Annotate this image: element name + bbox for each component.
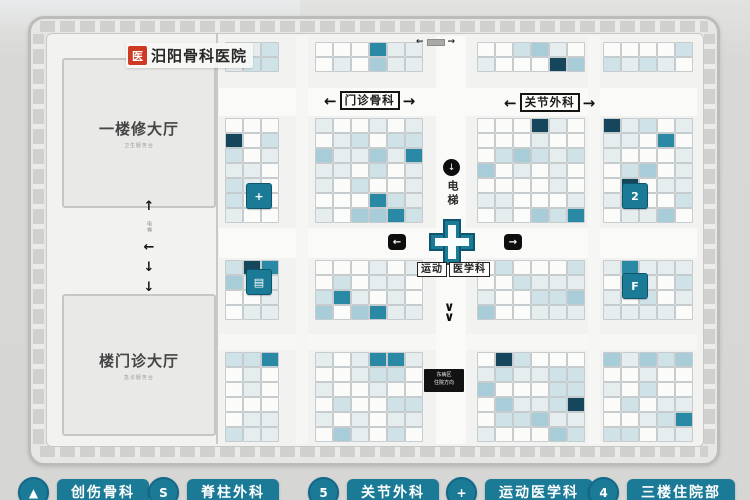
booth-cell	[567, 118, 585, 133]
booth-cell	[513, 305, 531, 320]
booth-cell	[639, 42, 657, 57]
booth-cell	[369, 275, 387, 290]
booth-cell	[225, 397, 243, 412]
booth-cell	[567, 57, 585, 72]
left-arrow-icon: ←	[504, 94, 517, 112]
booth-cell	[603, 397, 621, 412]
booth-cell	[675, 148, 693, 163]
booth-cell	[495, 133, 513, 148]
booth-cell	[675, 382, 693, 397]
department-badge-icon: +	[246, 183, 272, 209]
booth-cell	[333, 427, 351, 442]
booth-cell	[351, 57, 369, 72]
booth-cell	[639, 133, 657, 148]
booth-cell	[351, 352, 369, 367]
booth-cell	[657, 163, 675, 178]
booth-cell	[369, 42, 387, 57]
booth-cell	[567, 427, 585, 442]
logo-text: 汨阳骨科医院	[151, 45, 247, 66]
booth-cell	[261, 367, 279, 382]
booth-cell	[549, 208, 567, 223]
hall-lower-subtitle: 急诊服务台	[124, 374, 154, 381]
booth-cell	[405, 352, 423, 367]
booth-cell	[531, 148, 549, 163]
booth-cell	[225, 367, 243, 382]
booth-cell	[549, 427, 567, 442]
booth-cell	[531, 397, 549, 412]
booth-cell	[369, 382, 387, 397]
booth-cell	[351, 193, 369, 208]
legend-item: ▲创伤骨科	[18, 477, 149, 500]
booth-cell	[621, 42, 639, 57]
booth-cell	[567, 397, 585, 412]
booth-cell	[657, 178, 675, 193]
booth-cell	[315, 352, 333, 367]
legend-item: 5关节外科	[308, 477, 439, 500]
elevator-icon: ↓	[443, 159, 460, 176]
booth-cell	[549, 57, 567, 72]
ward-sign-line2: 住院方向	[424, 379, 464, 387]
booth-cell	[549, 133, 567, 148]
booth-cell	[333, 148, 351, 163]
booth-cell	[351, 382, 369, 397]
booth-cell	[261, 148, 279, 163]
booth-cell	[261, 352, 279, 367]
booth-cell	[513, 275, 531, 290]
booth-cell	[603, 352, 621, 367]
booth-cell	[369, 163, 387, 178]
booth-cell	[657, 42, 675, 57]
booth-cell	[225, 275, 243, 290]
booth-cell	[675, 193, 693, 208]
direction-badge-left-arrow-icon: ←	[388, 234, 406, 250]
booth-cell	[477, 290, 495, 305]
booth-cell	[549, 118, 567, 133]
booth-cell	[657, 193, 675, 208]
booth-cell	[531, 42, 549, 57]
booth-cell	[603, 133, 621, 148]
booth-cell	[603, 275, 621, 290]
booth-cell	[333, 57, 351, 72]
booth-cell	[603, 178, 621, 193]
ward-sign: 东病区 住院方向	[424, 369, 464, 392]
booth-cell	[621, 412, 639, 427]
booth-cell	[639, 57, 657, 72]
booth-cell	[387, 290, 405, 305]
booth-cell	[513, 193, 531, 208]
booth-cell	[315, 148, 333, 163]
booth-cell	[675, 305, 693, 320]
right-arrow-icon: →	[403, 92, 416, 110]
booth-cell	[387, 148, 405, 163]
booth-cell	[657, 412, 675, 427]
booth-cell	[225, 290, 243, 305]
booth-cell	[225, 118, 243, 133]
nav-small-label: 电梯	[146, 221, 152, 233]
hall-upper-title: 一楼修大厅	[99, 118, 179, 139]
booth-cell	[531, 133, 549, 148]
booth-cell	[495, 260, 513, 275]
booth-cell	[369, 290, 387, 305]
booth-cell	[603, 148, 621, 163]
booth-cell	[261, 305, 279, 320]
booth-cell	[621, 352, 639, 367]
sign-label: 门诊骨科	[340, 91, 400, 110]
booth-cell	[225, 208, 243, 223]
booth-cell	[657, 352, 675, 367]
booth-cell	[369, 178, 387, 193]
booth-cell	[549, 163, 567, 178]
booth-cell	[513, 367, 531, 382]
booth-cell	[513, 163, 531, 178]
booth-cell	[405, 118, 423, 133]
booth-cell	[351, 367, 369, 382]
booth-cell	[405, 178, 423, 193]
booth-cell	[495, 163, 513, 178]
booth-cell	[567, 178, 585, 193]
booth-cell	[603, 42, 621, 57]
booth-cell	[405, 290, 423, 305]
booth-cell	[621, 397, 639, 412]
booth-cell	[567, 163, 585, 178]
booth-cell	[675, 412, 693, 427]
booth-cell	[387, 118, 405, 133]
booth-cell	[495, 178, 513, 193]
booth-cell	[243, 382, 261, 397]
booth-cell	[369, 305, 387, 320]
perimeter-rooms-top	[40, 21, 708, 32]
booth-cell	[513, 260, 531, 275]
booth-cell	[261, 42, 279, 57]
legend-label: 脊柱外科	[187, 479, 279, 500]
booth-cell	[261, 382, 279, 397]
booth-cell	[549, 148, 567, 163]
booth-cell	[531, 118, 549, 133]
corridor-direction-arrows: ↑ 电梯 ← ↓ ↓	[134, 201, 164, 293]
booth-cell	[657, 367, 675, 382]
booth-cell	[243, 397, 261, 412]
booth-cell	[405, 208, 423, 223]
legend-icon: 4	[588, 477, 619, 500]
booth-cell	[315, 275, 333, 290]
hall-first-floor: 一楼修大厅 卫生服务台	[62, 58, 216, 208]
booth-cell	[387, 42, 405, 57]
booth-cell	[315, 427, 333, 442]
ward-sign-line1: 东病区	[424, 371, 464, 379]
booth-cell	[387, 412, 405, 427]
booth-cell	[531, 163, 549, 178]
booth-cell	[369, 412, 387, 427]
booth-cell	[225, 427, 243, 442]
booth-cell	[603, 193, 621, 208]
booth-cell	[315, 118, 333, 133]
booth-cell	[513, 397, 531, 412]
booth-cell	[405, 427, 423, 442]
booth-cell	[333, 397, 351, 412]
booth-cell	[225, 260, 243, 275]
booth-cell	[495, 382, 513, 397]
booth-cell	[261, 118, 279, 133]
booth-cell	[549, 382, 567, 397]
booth-cell	[639, 397, 657, 412]
booth-cell	[675, 178, 693, 193]
legend-icon: S	[148, 477, 179, 500]
booth-cell	[405, 412, 423, 427]
booth-cell	[387, 305, 405, 320]
booth-cell	[243, 148, 261, 163]
direction-badge-right-arrow-icon: →	[504, 234, 522, 250]
booth-cell	[387, 178, 405, 193]
booth-cell	[603, 260, 621, 275]
perimeter-rooms-right	[704, 34, 715, 444]
booth-cell	[549, 193, 567, 208]
booth-cell	[567, 275, 585, 290]
booth-cell	[657, 382, 675, 397]
booth-cell	[603, 290, 621, 305]
booth-cell	[549, 275, 567, 290]
booth-cell	[243, 412, 261, 427]
booth-cell	[351, 163, 369, 178]
booth-cell	[315, 412, 333, 427]
booth-cell	[675, 208, 693, 223]
booth-cell	[315, 208, 333, 223]
booth-cell	[351, 148, 369, 163]
booth-cell	[333, 42, 351, 57]
booth-cell	[639, 305, 657, 320]
booth-cell	[387, 163, 405, 178]
booth-cell	[549, 397, 567, 412]
booth-cell	[369, 352, 387, 367]
booth-cell	[513, 148, 531, 163]
booth-cell	[477, 208, 495, 223]
booth-cell	[315, 260, 333, 275]
booth-cell	[495, 397, 513, 412]
booth-cell	[495, 367, 513, 382]
booth-cell	[639, 208, 657, 223]
booth-cell	[387, 193, 405, 208]
booth-cell	[243, 427, 261, 442]
booth-cell	[351, 412, 369, 427]
booth-cell	[513, 133, 531, 148]
booth-cell	[531, 305, 549, 320]
booth-cell	[243, 367, 261, 382]
booth-cell	[621, 208, 639, 223]
booth-cell	[477, 305, 495, 320]
booth-cell	[387, 57, 405, 72]
booth-cell	[603, 118, 621, 133]
booth-cell	[333, 382, 351, 397]
booth-cell	[531, 57, 549, 72]
booth-cell	[261, 412, 279, 427]
booth-cell	[675, 427, 693, 442]
booth-cell	[495, 193, 513, 208]
booth-cell	[603, 382, 621, 397]
booth-cell	[657, 290, 675, 305]
booth-cell	[369, 148, 387, 163]
booth-cell	[621, 163, 639, 178]
booth-cell	[387, 367, 405, 382]
booth-cell	[549, 367, 567, 382]
sign-outpatient-orthopedics: ← 门诊骨科 →	[324, 91, 415, 110]
booth-cell	[387, 260, 405, 275]
booth-cell	[513, 208, 531, 223]
left-arrow-icon: ←	[324, 92, 337, 110]
booth-cell	[405, 148, 423, 163]
entrance-direction-indicator: ← →	[416, 37, 455, 47]
booth-cell	[531, 275, 549, 290]
booth-cell	[567, 208, 585, 223]
booth-cell	[657, 275, 675, 290]
booth-cell	[225, 412, 243, 427]
booth-cell	[603, 208, 621, 223]
booth-cell	[477, 275, 495, 290]
perimeter-rooms-bottom	[40, 446, 708, 457]
booth-cell	[621, 305, 639, 320]
booth-cell	[333, 305, 351, 320]
booth-cell	[315, 133, 333, 148]
booth-cell	[531, 208, 549, 223]
booth-cell	[675, 118, 693, 133]
booth-cell	[477, 118, 495, 133]
booth-cell	[351, 427, 369, 442]
booth-cell	[333, 352, 351, 367]
department-badge-icon: ▤	[246, 269, 272, 295]
booth-cell	[243, 118, 261, 133]
booth-cell	[495, 148, 513, 163]
booth-cell	[531, 382, 549, 397]
booth-cell	[405, 367, 423, 382]
booth-cell	[315, 397, 333, 412]
booth-cell	[657, 148, 675, 163]
booth-cell	[621, 427, 639, 442]
booth-cell	[333, 290, 351, 305]
booth-cell	[477, 178, 495, 193]
booth-cell	[225, 163, 243, 178]
booth-cell	[369, 133, 387, 148]
booth-cell	[675, 275, 693, 290]
booth-cell	[531, 352, 549, 367]
booth-cell	[567, 367, 585, 382]
legend-label: 三楼住院部	[627, 479, 735, 500]
booth-cell	[477, 412, 495, 427]
down-arrow-icon: ↓	[144, 282, 155, 293]
booth-cell	[567, 305, 585, 320]
booth-cell	[333, 367, 351, 382]
booth-cell	[405, 305, 423, 320]
booth-cell	[315, 163, 333, 178]
booth-cell	[549, 305, 567, 320]
booth-cell	[657, 397, 675, 412]
booth-cell	[495, 427, 513, 442]
booth-cell	[351, 133, 369, 148]
booth-cell	[261, 133, 279, 148]
booth-cell	[531, 427, 549, 442]
booth-cell	[621, 133, 639, 148]
booth-cell	[531, 367, 549, 382]
booth-cell	[531, 193, 549, 208]
medical-cross-icon	[429, 219, 475, 265]
booth-cell	[531, 260, 549, 275]
booth-cell	[333, 163, 351, 178]
booth-cell	[657, 118, 675, 133]
booth-cell	[351, 42, 369, 57]
booth-cell	[657, 57, 675, 72]
booth-cell	[657, 208, 675, 223]
booth-cell	[639, 118, 657, 133]
hall-upper-subtitle: 卫生服务台	[124, 142, 154, 149]
booth-cell	[369, 367, 387, 382]
booth-cell	[567, 148, 585, 163]
sign-sports-medicine: 运动 医学科	[417, 262, 490, 277]
booth-cell	[567, 42, 585, 57]
booth-cell	[495, 412, 513, 427]
booth-cell	[639, 163, 657, 178]
booth-cell	[513, 118, 531, 133]
booth-cell	[477, 148, 495, 163]
booth-cell	[333, 118, 351, 133]
booth-cell	[315, 382, 333, 397]
down-arrow-icon: ↓	[144, 262, 155, 273]
booth-cell	[477, 382, 495, 397]
booth-cell	[405, 57, 423, 72]
booth-cell	[513, 57, 531, 72]
booth-cell	[549, 290, 567, 305]
perimeter-rooms-left	[33, 34, 44, 444]
booth-cell	[549, 178, 567, 193]
booth-cell	[477, 352, 495, 367]
wall-divider	[216, 34, 218, 444]
legend-icon: 5	[308, 477, 339, 500]
booth-cell	[315, 193, 333, 208]
left-arrow-icon: ←	[416, 37, 424, 47]
booth-cell	[495, 42, 513, 57]
left-arrow-icon: ←	[144, 242, 155, 253]
booth-cell	[495, 290, 513, 305]
booth-cell	[567, 133, 585, 148]
booth-cell	[477, 397, 495, 412]
booth-cell	[315, 42, 333, 57]
up-arrow-icon: ↑	[144, 201, 155, 212]
booth-cell	[351, 178, 369, 193]
booth-cell	[621, 118, 639, 133]
booth-cell	[477, 42, 495, 57]
booth-cell	[639, 427, 657, 442]
booth-cell	[477, 57, 495, 72]
booth-cell	[315, 178, 333, 193]
booth-cell	[261, 208, 279, 223]
booth-cell	[315, 305, 333, 320]
booth-cell	[567, 260, 585, 275]
booth-cell	[387, 382, 405, 397]
booth-cell	[513, 382, 531, 397]
hall-outpatient: 楼门诊大厅 急诊服务台	[62, 294, 216, 436]
hospital-logo: 医 汨阳骨科医院	[126, 43, 253, 68]
booth-cell	[531, 178, 549, 193]
booth-cell	[333, 275, 351, 290]
booth-cell	[567, 193, 585, 208]
booth-cell	[675, 352, 693, 367]
booth-cell	[675, 163, 693, 178]
booth-cell	[333, 178, 351, 193]
booth-cell	[513, 42, 531, 57]
booth-cell	[261, 397, 279, 412]
booth-cell	[603, 163, 621, 178]
booth-cell	[405, 275, 423, 290]
booth-cell	[333, 260, 351, 275]
hall-lower-title: 楼门诊大厅	[99, 350, 179, 371]
booth-cell	[639, 148, 657, 163]
booth-cell	[333, 133, 351, 148]
